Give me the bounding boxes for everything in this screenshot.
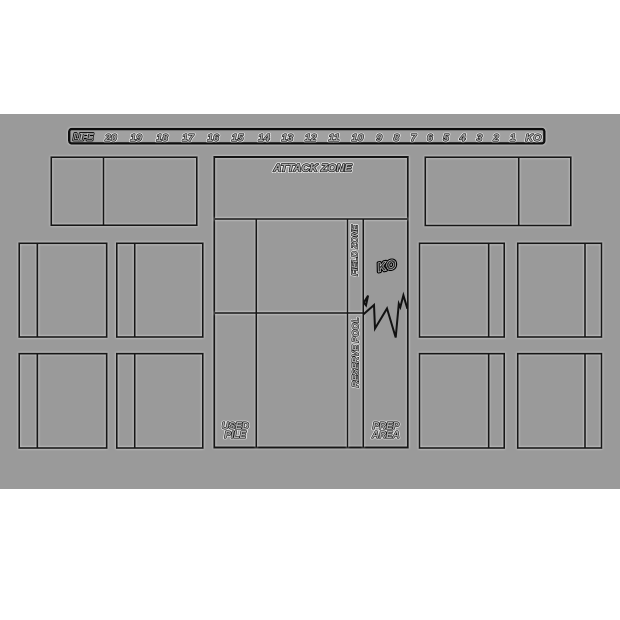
svg-text:KO: KO [525,132,541,144]
svg-text:18: 18 [156,132,168,144]
svg-text:6: 6 [427,132,433,144]
svg-text:FIELD ZONE: FIELD ZONE [349,225,359,276]
svg-text:1: 1 [510,132,516,144]
svg-text:12: 12 [305,132,317,144]
svg-text:19: 19 [130,132,142,144]
svg-text:10: 10 [352,132,364,144]
svg-text:20: 20 [104,132,117,144]
svg-text:4: 4 [459,132,466,144]
svg-text:5: 5 [443,132,449,144]
svg-text:PILE: PILE [224,430,246,441]
svg-text:3: 3 [476,132,482,144]
svg-text:ATTACK ZONE: ATTACK ZONE [272,163,352,175]
svg-text:RESERVE POOL: RESERVE POOL [351,317,361,387]
svg-text:11: 11 [329,132,340,144]
svg-text:7: 7 [411,132,418,144]
svg-text:2: 2 [492,132,499,144]
svg-text:16: 16 [207,132,219,144]
svg-text:15: 15 [232,132,244,144]
svg-text:17: 17 [182,132,195,144]
svg-text:13: 13 [281,132,293,144]
svg-text:AREA: AREA [371,430,400,441]
svg-text:14: 14 [258,132,270,144]
svg-text:LIFE: LIFE [73,132,93,142]
svg-text:9: 9 [376,132,382,144]
svg-text:8: 8 [393,132,399,144]
